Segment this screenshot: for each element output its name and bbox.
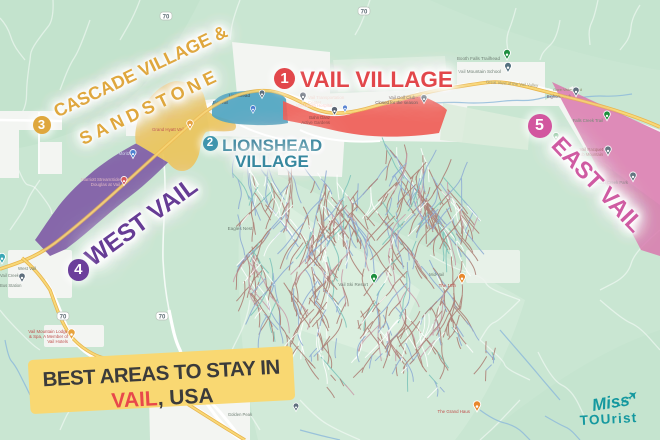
svg-text:Douglas at Vail: Douglas at Vail	[91, 182, 120, 187]
svg-text:Active Gardens: Active Gardens	[301, 120, 330, 125]
svg-text:The 10th: The 10th	[439, 283, 457, 288]
svg-text:Booth Falls Trailhead: Booth Falls Trailhead	[457, 56, 501, 61]
svg-text:Falls Creek Trail: Falls Creek Trail	[573, 118, 603, 123]
svg-text:Center: Center	[308, 100, 322, 105]
svg-text:70: 70	[361, 9, 368, 15]
svg-text:West Vail: West Vail	[18, 266, 36, 271]
svg-text:Closed for the season: Closed for the season	[375, 100, 418, 105]
svg-text:Grand Hyatt Vail: Grand Hyatt Vail	[152, 127, 184, 132]
svg-text:70: 70	[163, 14, 170, 20]
svg-text:Golden Peak: Golden Peak	[228, 412, 253, 417]
svg-text:Bus Station: Bus Station	[0, 283, 22, 288]
svg-text:Vail Hotels: Vail Hotels	[47, 339, 68, 344]
svg-text:70: 70	[159, 314, 166, 320]
svg-text:Moritz: Moritz	[119, 151, 130, 156]
svg-text:Vail Ski Resort: Vail Ski Resort	[338, 282, 369, 287]
svg-text:Eagles Nest: Eagles Nest	[228, 226, 253, 231]
svg-text:Mid-Vail: Mid-Vail	[429, 272, 444, 277]
svg-text:Vail Mountain School: Vail Mountain School	[458, 69, 501, 74]
svg-text:70: 70	[60, 314, 67, 320]
svg-text:Vail Creek: Vail Creek	[0, 273, 20, 278]
svg-text:The Grand Haus: The Grand Haus	[438, 409, 471, 414]
svg-text:TOUrist: TOUrist	[579, 410, 637, 428]
